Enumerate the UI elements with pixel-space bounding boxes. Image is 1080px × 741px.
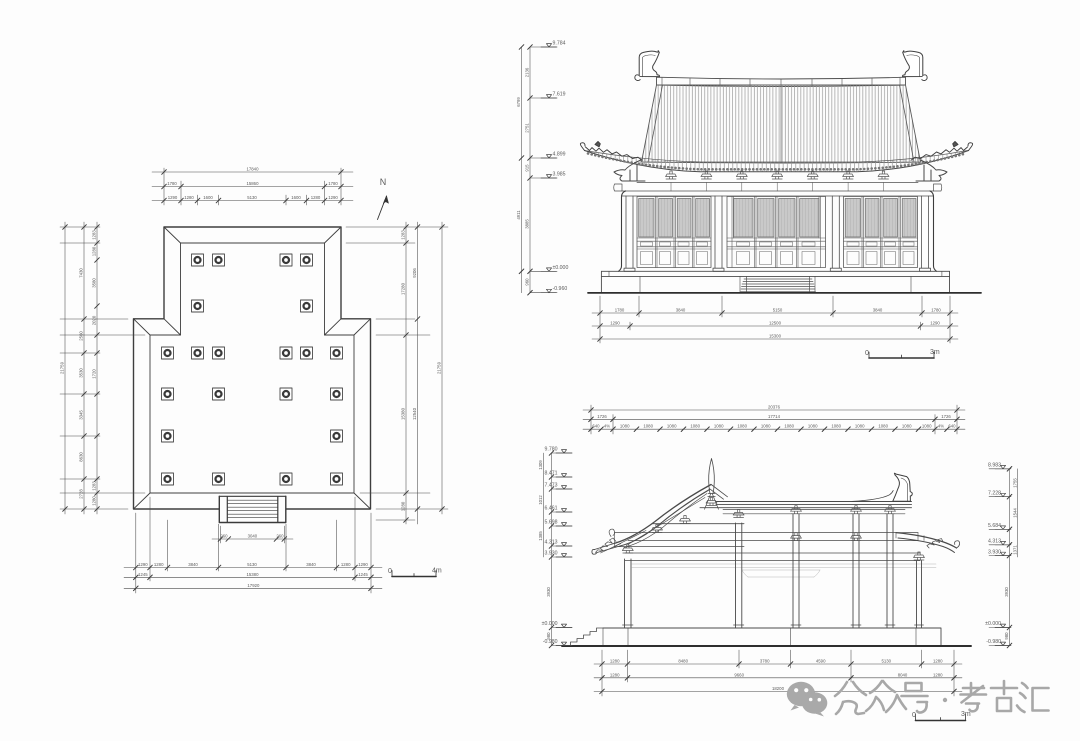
svg-text:1080: 1080	[831, 424, 841, 429]
svg-text:7.228: 7.228	[988, 490, 1001, 496]
svg-text:5130: 5130	[882, 659, 892, 664]
svg-text:5150: 5150	[773, 308, 783, 313]
svg-text:21759: 21759	[60, 361, 65, 374]
svg-text:260: 260	[220, 534, 228, 539]
svg-text:1385: 1385	[538, 531, 543, 541]
svg-text:1371: 1371	[1013, 545, 1018, 555]
svg-text:21759: 21759	[437, 361, 442, 374]
svg-text:17920: 17920	[247, 583, 260, 588]
svg-text:640: 640	[948, 424, 956, 429]
svg-text:1080: 1080	[643, 424, 653, 429]
svg-text:3m: 3m	[930, 349, 940, 356]
svg-text:1600: 1600	[203, 195, 213, 200]
svg-text:8.983: 8.983	[988, 463, 1001, 469]
svg-text:1290: 1290	[610, 321, 620, 326]
svg-text:6799: 6799	[516, 97, 521, 107]
svg-text:2560: 2560	[79, 331, 84, 341]
svg-text:4.313: 4.313	[545, 540, 558, 546]
svg-text:1080: 1080	[922, 424, 932, 429]
svg-text:7430: 7430	[79, 268, 84, 278]
svg-text:1245: 1245	[138, 572, 148, 577]
svg-text:3885: 3885	[525, 219, 530, 229]
svg-text:1290: 1290	[168, 195, 178, 200]
svg-text:7.619: 7.619	[553, 92, 566, 98]
svg-text:4%: 4%	[604, 424, 610, 429]
svg-text:3m: 3m	[961, 711, 971, 718]
svg-text:3840: 3840	[676, 308, 686, 313]
svg-text:3530: 3530	[79, 368, 84, 378]
svg-text:3.930: 3.930	[545, 551, 558, 557]
svg-text:8040: 8040	[898, 672, 908, 677]
svg-text:12540: 12540	[412, 407, 417, 420]
svg-text:260: 260	[276, 534, 284, 539]
svg-text:±0.000: ±0.000	[553, 265, 569, 271]
svg-text:1245: 1245	[358, 572, 368, 577]
svg-text:1280: 1280	[341, 562, 351, 567]
svg-text:1080: 1080	[690, 424, 700, 429]
svg-text:4911: 4911	[516, 210, 521, 220]
svg-text:1080: 1080	[620, 424, 630, 429]
svg-text:N: N	[380, 177, 387, 187]
svg-text:960: 960	[525, 278, 530, 286]
svg-text:1544: 1544	[1013, 508, 1018, 518]
svg-text:1755: 1755	[1013, 478, 1018, 488]
svg-text:1280: 1280	[184, 195, 194, 200]
svg-text:1780: 1780	[615, 308, 625, 313]
svg-text:0: 0	[388, 568, 392, 575]
svg-text:±0.000: ±0.000	[542, 621, 558, 627]
svg-text:1290: 1290	[358, 562, 368, 567]
svg-text:2020: 2020	[92, 315, 97, 325]
svg-text:15860: 15860	[247, 181, 260, 186]
svg-text:1283: 1283	[92, 230, 97, 240]
svg-text:5.684: 5.684	[988, 523, 1001, 529]
svg-text:3345: 3345	[79, 410, 84, 420]
svg-text:1012: 1012	[538, 495, 543, 505]
svg-text:9206: 9206	[412, 268, 417, 278]
svg-text:2728: 2728	[79, 489, 84, 499]
svg-text:15380: 15380	[401, 407, 406, 420]
svg-text:1290: 1290	[328, 195, 338, 200]
svg-text:15300: 15300	[769, 334, 782, 339]
svg-text:9.780: 9.780	[545, 447, 558, 453]
svg-text:1290: 1290	[138, 562, 148, 567]
svg-text:7.473: 7.473	[545, 483, 558, 489]
svg-text:3840: 3840	[873, 308, 883, 313]
svg-text:1280: 1280	[610, 659, 620, 664]
svg-text:0: 0	[912, 712, 916, 719]
svg-text:-0.960: -0.960	[553, 286, 568, 292]
svg-text:1080: 1080	[714, 424, 724, 429]
svg-text:3930: 3930	[546, 587, 551, 597]
svg-text:1600: 1600	[291, 195, 301, 200]
svg-text:1080: 1080	[667, 424, 677, 429]
svg-text:4m: 4m	[432, 568, 442, 575]
svg-text:2751: 2751	[525, 123, 530, 133]
svg-text:18200: 18200	[772, 686, 785, 691]
svg-text:1290: 1290	[930, 321, 940, 326]
svg-text:1080: 1080	[761, 424, 771, 429]
svg-text:±0.000: ±0.000	[985, 621, 1001, 627]
svg-text:5130: 5130	[247, 195, 257, 200]
svg-text:12500: 12500	[769, 321, 782, 326]
svg-text:3840: 3840	[188, 562, 198, 567]
svg-text:3780: 3780	[760, 659, 770, 664]
svg-text:4.313: 4.313	[988, 539, 1001, 545]
svg-text:1280: 1280	[933, 659, 943, 664]
svg-text:1726: 1726	[597, 414, 607, 419]
svg-text:1080: 1080	[784, 424, 794, 429]
svg-text:2136: 2136	[525, 67, 530, 77]
svg-text:980: 980	[546, 632, 551, 640]
svg-text:1283: 1283	[401, 230, 406, 240]
svg-text:4.899: 4.899	[553, 152, 566, 158]
svg-text:1780: 1780	[167, 181, 177, 186]
svg-text:0: 0	[865, 350, 869, 357]
svg-text:4%: 4%	[938, 424, 944, 429]
svg-text:3580: 3580	[92, 278, 97, 288]
svg-text:1080: 1080	[737, 424, 747, 429]
svg-text:1720: 1720	[92, 369, 97, 379]
svg-text:1280: 1280	[92, 496, 97, 506]
svg-text:640: 640	[592, 424, 600, 429]
svg-text:3.930: 3.930	[988, 549, 1001, 555]
svg-text:8480: 8480	[678, 659, 688, 664]
svg-text:1780: 1780	[328, 181, 338, 186]
svg-text:1080: 1080	[808, 424, 818, 429]
svg-text:8630: 8630	[79, 452, 84, 462]
svg-text:1283: 1283	[92, 481, 97, 491]
svg-text:1726: 1726	[941, 414, 951, 419]
svg-text:-0.980: -0.980	[986, 639, 1001, 645]
svg-text:6.461: 6.461	[545, 506, 558, 512]
svg-text:915: 915	[525, 164, 530, 172]
svg-text:3840: 3840	[306, 562, 316, 567]
svg-text:9.784: 9.784	[553, 41, 566, 47]
svg-text:1280: 1280	[154, 562, 164, 567]
svg-text:1280: 1280	[311, 195, 321, 200]
svg-text:1280: 1280	[401, 501, 406, 511]
svg-text:17280: 17280	[401, 282, 406, 295]
svg-text:1780: 1780	[931, 308, 941, 313]
svg-text:9660: 9660	[734, 672, 744, 677]
svg-text:5.698: 5.698	[545, 520, 558, 526]
svg-text:1309: 1309	[538, 460, 543, 470]
svg-text:980: 980	[1004, 632, 1009, 640]
svg-text:4590: 4590	[816, 659, 826, 664]
svg-text:3040: 3040	[248, 534, 258, 539]
svg-text:1080: 1080	[902, 424, 912, 429]
svg-text:20376: 20376	[768, 405, 781, 410]
svg-text:1080: 1080	[878, 424, 888, 429]
svg-text:1280: 1280	[610, 672, 620, 677]
svg-text:5130: 5130	[247, 562, 257, 567]
svg-text:1280: 1280	[92, 246, 97, 256]
svg-text:3930: 3930	[1004, 587, 1009, 597]
svg-text:17714: 17714	[768, 414, 781, 419]
svg-text:8.471: 8.471	[545, 471, 558, 477]
svg-text:15380: 15380	[247, 572, 260, 577]
svg-text:3.985: 3.985	[553, 172, 566, 178]
svg-text:17840: 17840	[247, 167, 260, 172]
svg-text:1280: 1280	[933, 672, 943, 677]
svg-text:1080: 1080	[855, 424, 865, 429]
